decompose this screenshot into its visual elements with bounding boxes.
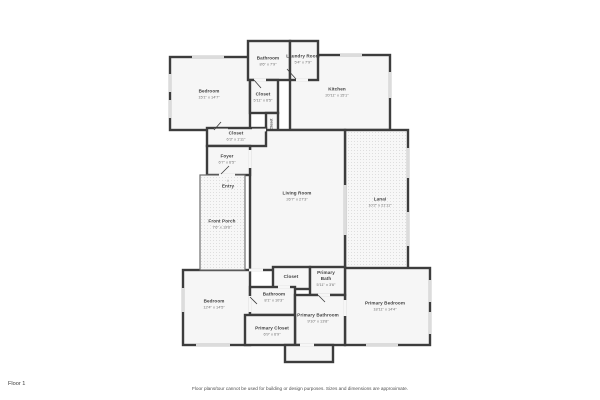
floorplan-drawing	[0, 0, 600, 400]
front-porch-outline	[200, 175, 245, 270]
floorplan-page: Bedroom 15'1" x 14'7" Bathroom 8'6" x 7'…	[0, 0, 600, 400]
disclaimer-text: Floor plans/tour cannot be used for buil…	[0, 386, 600, 391]
